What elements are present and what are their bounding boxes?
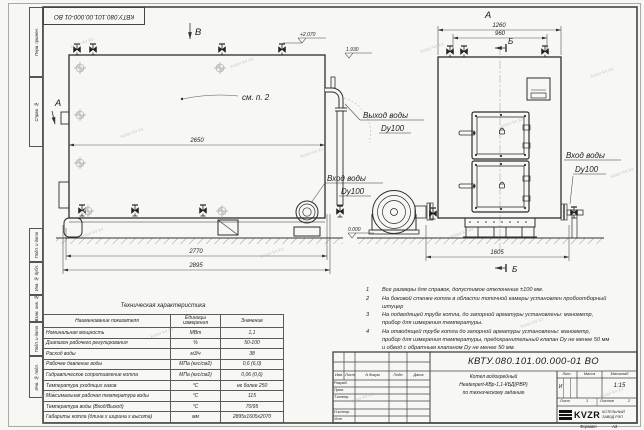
inlet-dn-label-front: Dy100: [575, 165, 599, 174]
view-label-a: А: [484, 10, 491, 21]
center-mark-icon: [216, 205, 228, 217]
note-item: 3На подводящей трубе котла, до запорной …: [358, 312, 610, 328]
tech-table: Наименование показателя Единицы измерени…: [43, 314, 284, 423]
view-label-b: В: [195, 27, 202, 38]
valve-icon: [461, 46, 468, 57]
col-data: Дата: [408, 373, 429, 377]
center-mark-icon: [82, 205, 94, 217]
inlet-leader-front: [570, 176, 573, 204]
margin-box-vzam-inv: Взам. инв. №: [29, 295, 43, 322]
sheets-value: 2: [628, 399, 630, 403]
note-item: 1Все размеры для справок, допустимое отк…: [358, 287, 610, 295]
inlet-water-label-side: Вход воды: [327, 174, 366, 183]
table-row: Расход водым3/ч38: [44, 349, 284, 360]
elevation-zero: 0.000: [348, 227, 361, 233]
valve-icon: [542, 46, 549, 57]
dimension-lines-front: [426, 26, 569, 261]
valve-icon: [90, 44, 97, 55]
margin-box-inv-dubl: Инв. № дубл.: [29, 262, 43, 295]
center-mark-icon: [74, 157, 86, 169]
margin-box-podp-data-2: Подп. и дата: [29, 322, 43, 356]
format-label: Формат: [580, 424, 597, 429]
mass-label: Масса: [577, 372, 602, 376]
note-text: На подводящей трубе котла, до запорной а…: [382, 312, 610, 328]
inlet-leader-side: [311, 183, 325, 203]
note-text: На боковой стенке котла в области топочн…: [382, 296, 610, 312]
inlet-water-label-front: Вход воды: [566, 151, 605, 160]
company-logo-row: KVZR КОТЕЛЬНЫЙ ЗАВОД РЭП: [559, 407, 636, 422]
valve-icon: [571, 207, 578, 218]
col-izm: Изм.: [334, 373, 344, 377]
valve-icon: [200, 205, 207, 216]
valve-icon: [132, 205, 139, 216]
dimension-1260: 1260: [492, 23, 506, 29]
dimension-2895: 2895: [188, 263, 203, 269]
center-mark-icon: [214, 62, 226, 74]
inlet-dn-label-side: Dy100: [341, 187, 365, 196]
elevation-outlet: 1.930: [346, 47, 359, 53]
format-value: А3: [612, 424, 617, 429]
table-row: Рабочее давление водыМПа (кгс/см2)0,6 (6…: [44, 359, 284, 370]
sheet-label: Лист: [560, 399, 570, 403]
dimension-1605: 1605: [490, 250, 504, 256]
table-row: Номинальная мощностьМВт1,1: [44, 328, 284, 339]
margin-box-inv-podl: Инв. № подл.: [29, 356, 43, 398]
lit-value: И: [557, 384, 564, 390]
title-block-designation: КВТУ.080.101.00.000-01 ВО: [432, 353, 635, 370]
outlet-water-label: Выход воды: [363, 111, 408, 120]
note-item: 2На боковой стенке котла в области топоч…: [358, 296, 610, 312]
outlet-leader: [345, 104, 360, 120]
dimension-2650: 2650: [189, 138, 204, 144]
blueprint-sheet: 2650 2770 2895 В А см. п. 2 +2.070 1.930…: [0, 0, 644, 430]
center-mark-icon: [74, 109, 86, 121]
dimension-960: 960: [495, 31, 506, 37]
margin-box-sprav-no: Справ. №: [29, 77, 43, 147]
side-view: [59, 55, 370, 237]
outlet-dn-label: Dy100: [381, 124, 405, 133]
center-mark-icon: [74, 62, 86, 74]
table-row: Температура уходящих газов°Сне более 250: [44, 380, 284, 391]
elevation-top: +2.070: [300, 32, 316, 38]
table-row: Гидравлическое сопротивление котлаМПа (к…: [44, 370, 284, 381]
sheet-value: 1: [586, 399, 588, 403]
margin-box-podp-data-1: Подп. и дата: [29, 228, 43, 262]
valve-icon: [74, 44, 81, 55]
sheets-label: Листов: [600, 399, 614, 403]
table-row: Диапазон рабочего регулирования%50-100: [44, 338, 284, 349]
section-arrow-a: [52, 111, 55, 124]
row-razrab: Разраб.: [334, 381, 348, 385]
row-nkontr: Н.контр.: [334, 410, 350, 414]
valve-icon: [337, 206, 344, 217]
door-bolts: [469, 114, 527, 223]
valve-icon: [219, 44, 226, 55]
note-text: Все размеры для справок, допустимое откл…: [382, 287, 543, 295]
section-label-b-bottom: Б: [512, 265, 517, 274]
tech-table-title: Техническая характеристика: [43, 303, 283, 309]
section-label-b-top: Б: [508, 37, 513, 46]
corner-stamp-text: КВТУ.080.101.00.000-01 ВО: [54, 13, 134, 20]
kvzr-logo-text: KVZR: [574, 410, 600, 420]
callout-see-note: см. п. 2: [242, 93, 270, 102]
row-tkontr: Т.контр.: [334, 395, 349, 399]
section-label-a: А: [54, 98, 61, 109]
notes-list: 1Все размеры для справок, допустимое отк…: [358, 287, 610, 354]
row-utv: Утв.: [334, 417, 343, 421]
kvzr-logo-icon: [559, 410, 572, 420]
col-list: Лист: [345, 373, 355, 377]
lit-label: Лит.: [557, 372, 577, 376]
valve-icon: [279, 44, 286, 55]
callout-dot: [181, 98, 183, 100]
title-block-doc-name: Котел водогрейный Heatexpert-КВр-1,1-КБД…: [432, 374, 555, 397]
company-name: КОТЕЛЬНЫЙ ЗАВОД РЭП: [602, 410, 625, 419]
tech-header-row: Наименование показателя Единицы измерени…: [44, 315, 284, 328]
table-row: Габариты котла (длина х ширина х высота)…: [44, 412, 284, 423]
note-item: 4На отводящей трубе котла до запорной ар…: [358, 329, 610, 352]
table-row: Максимальная рабочая температура воды°С1…: [44, 391, 284, 402]
scale-value: 1:15: [602, 383, 637, 389]
margin-box-perv-primen: Перв. примен.: [29, 7, 43, 77]
row-prov: Пров.: [334, 388, 344, 392]
dimension-2770: 2770: [188, 249, 203, 255]
table-row: Температура воды (Вход/Выход)°С70/95: [44, 401, 284, 412]
valve-icon: [447, 46, 454, 57]
col-ndoc: N докум.: [357, 373, 389, 377]
corner-stamp: КВТУ.080.101.00.000-01 ВО: [43, 7, 145, 25]
note-text: На отводящей трубе котла до запорной арм…: [382, 329, 610, 352]
scale-label: Масштаб: [602, 372, 637, 376]
callout-leader: [182, 95, 238, 99]
col-podp: Подп.: [390, 373, 407, 377]
front-view: [369, 47, 583, 253]
